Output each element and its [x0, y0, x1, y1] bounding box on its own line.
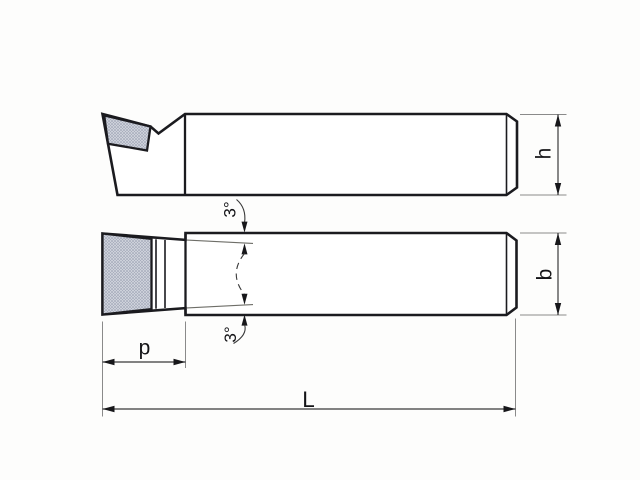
angle-arrow-top-edge	[242, 222, 248, 233]
taper-angle-label-top: 3°	[221, 201, 240, 217]
dimension-h: h	[520, 115, 567, 196]
b-arrow-down	[555, 303, 561, 315]
side-view-body-outline	[103, 114, 518, 195]
p-arrow-left	[103, 359, 115, 365]
dimension-b: b	[520, 233, 567, 315]
insert-length-label: p	[139, 337, 151, 360]
dimension-p: p	[103, 322, 186, 417]
dimension-L: L	[103, 319, 516, 417]
height-label: h	[533, 148, 556, 160]
b-arrow-up	[555, 233, 561, 245]
side-view	[103, 114, 518, 195]
plan-view	[103, 233, 517, 315]
p-arrow-right	[174, 359, 186, 365]
h-arrow-down	[555, 183, 561, 195]
width-label: b	[534, 269, 557, 281]
tool-drawing: 3° 3° h b p L	[0, 0, 640, 480]
technical-drawing-canvas: 3° 3° h b p L	[0, 0, 640, 480]
plan-view-carbide-insert	[103, 234, 152, 315]
L-arrow-right	[504, 406, 516, 412]
L-arrow-left	[103, 406, 115, 412]
overall-length-label: L	[302, 387, 315, 412]
side-view-carbide-insert	[104, 115, 150, 150]
taper-angle-label-bottom: 3°	[221, 326, 240, 342]
h-arrow-up	[555, 115, 561, 127]
